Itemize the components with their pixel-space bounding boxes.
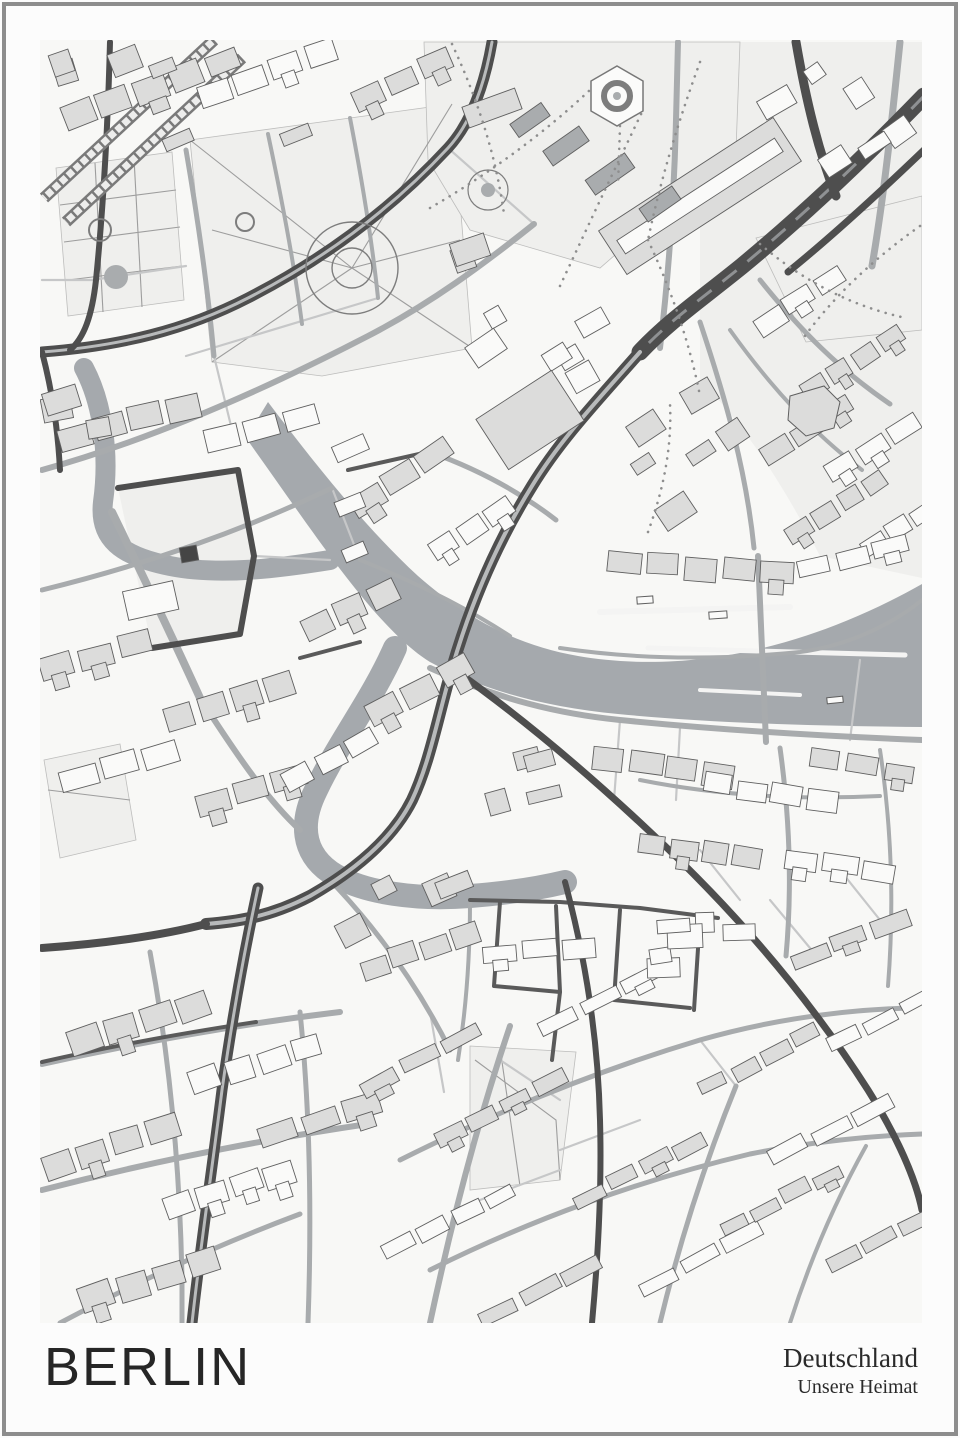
building xyxy=(723,924,756,941)
building-row xyxy=(731,845,762,870)
building xyxy=(649,947,672,965)
building-row xyxy=(701,840,729,865)
building-row xyxy=(703,771,732,794)
building-row xyxy=(736,781,768,803)
park-dot xyxy=(481,183,495,197)
building-wing xyxy=(493,959,509,972)
map-layers xyxy=(40,40,922,1323)
building-row xyxy=(607,551,643,575)
credit-tagline: Unsere Heimat xyxy=(783,1374,918,1400)
poster-root: BERLIN Deutschland Unsere Heimat xyxy=(0,0,960,1438)
building xyxy=(657,918,691,934)
building-row xyxy=(592,746,624,772)
building-wing xyxy=(768,579,784,595)
landmark-building xyxy=(179,545,198,563)
credit-country: Deutschland xyxy=(783,1344,918,1374)
building-row xyxy=(522,938,557,958)
poster-credit: Deutschland Unsere Heimat xyxy=(783,1344,918,1400)
building-row xyxy=(806,788,839,813)
building-wing xyxy=(830,869,848,884)
building-row xyxy=(638,834,666,856)
building-row xyxy=(665,756,698,781)
building-row xyxy=(562,938,596,960)
building-row xyxy=(684,557,717,583)
building-wing xyxy=(676,856,690,871)
boat xyxy=(709,611,727,619)
park-dot xyxy=(613,92,621,100)
berlin-street-map xyxy=(40,40,922,1323)
building-row xyxy=(629,750,665,775)
building-wing xyxy=(791,867,807,882)
park-dot xyxy=(104,265,128,289)
building-row xyxy=(647,552,679,575)
building-wing xyxy=(891,778,905,791)
building-row xyxy=(809,748,839,770)
boat xyxy=(827,696,844,704)
poster-title: BERLIN xyxy=(44,1336,251,1398)
boat xyxy=(637,596,653,604)
map-canvas xyxy=(40,40,922,1323)
building xyxy=(86,417,112,440)
building-row xyxy=(723,557,757,581)
